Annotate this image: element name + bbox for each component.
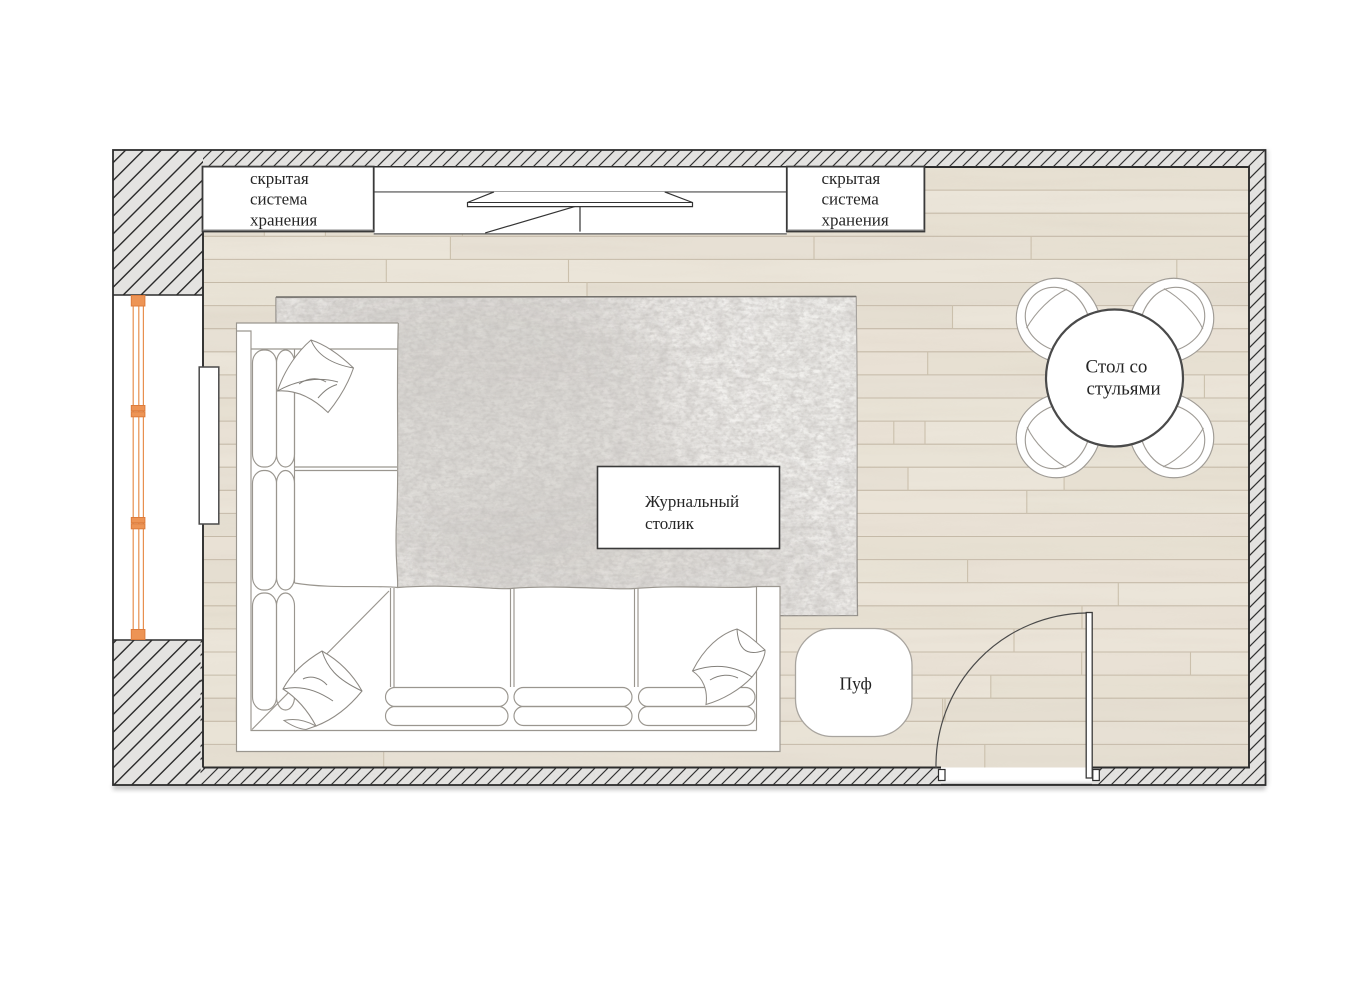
svg-text:хранения: хранения (250, 211, 317, 230)
svg-text:система: система (822, 190, 880, 209)
svg-text:скрытая: скрытая (250, 169, 309, 188)
svg-text:столик: столик (645, 514, 695, 533)
svg-text:скрытая: скрытая (822, 169, 881, 188)
svg-text:хранения: хранения (822, 211, 889, 230)
svg-text:стульями: стульями (1087, 379, 1161, 400)
svg-text:Стол со: Стол со (1086, 357, 1148, 378)
svg-text:Пуф: Пуф (840, 674, 872, 694)
svg-text:система: система (250, 190, 308, 209)
svg-text:Журнальный: Журнальный (645, 492, 739, 511)
